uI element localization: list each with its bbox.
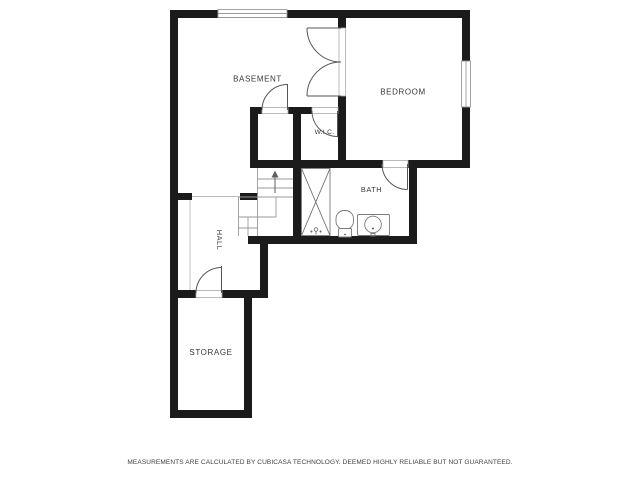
- door-bath: [382, 161, 408, 190]
- room-label-basement: BASEMENT: [233, 75, 282, 84]
- room-label-wic: W.I.C.: [315, 129, 335, 136]
- wall-bedroom-divider-lower: [338, 96, 346, 162]
- wall-top: [170, 10, 470, 18]
- room-label-storage: STORAGE: [189, 348, 232, 357]
- wall-hall-top-stub-left: [176, 193, 192, 200]
- wall-shaft-left: [250, 107, 258, 160]
- bath-fixtures: [302, 169, 390, 238]
- wall-mid-horizontal-right: [408, 160, 470, 168]
- shower-valve-icon: [311, 228, 322, 235]
- wall-hall-bottom-right: [222, 290, 268, 298]
- wall-left: [170, 10, 178, 418]
- window-top: [218, 10, 287, 18]
- stairs-up-arrow-icon: [272, 171, 279, 194]
- door-storage: [196, 266, 222, 298]
- double-door-bedroom: [307, 28, 346, 96]
- open-boundary-lines: [190, 197, 240, 291]
- disclaimer-text: MEASUREMENTS ARE CALCULATED BY CUBICASA …: [127, 459, 512, 466]
- room-labels: BASEMENT BEDROOM W.I.C. BATH HALL STORAG…: [189, 75, 425, 358]
- door-shaft: [262, 84, 288, 114]
- wall-bath-right: [409, 168, 417, 236]
- floorplan-svg: BASEMENT BEDROOM W.I.C. BATH HALL STORAG…: [0, 0, 640, 480]
- wall-hall-top-stub-right: [240, 193, 258, 200]
- wall-mid-horizontal-left: [250, 160, 383, 168]
- room-label-hall: HALL: [215, 230, 224, 251]
- wall-wic-top-c: [338, 107, 346, 114]
- wall-wic-bath-left: [293, 114, 301, 236]
- room-label-bedroom: BEDROOM: [380, 88, 426, 97]
- wall-storage-right: [244, 298, 252, 418]
- room-label-bath: BATH: [361, 185, 382, 194]
- wall-hall-bottom-left: [170, 290, 196, 298]
- floorplan-canvas: BASEMENT BEDROOM W.I.C. BATH HALL STORAG…: [0, 0, 640, 480]
- wall-bath-bottom: [248, 236, 417, 244]
- wall-bedroom-divider-top-stub: [338, 17, 346, 28]
- wall-storage-bottom: [170, 410, 252, 418]
- staircase: [239, 168, 294, 236]
- window-bedroom-right: [462, 61, 471, 107]
- sink: [358, 215, 390, 237]
- toilet: [336, 211, 354, 238]
- wall-under-bath-stub: [260, 244, 268, 298]
- wall-shaft-top-b: [288, 107, 312, 114]
- shower: [302, 169, 331, 236]
